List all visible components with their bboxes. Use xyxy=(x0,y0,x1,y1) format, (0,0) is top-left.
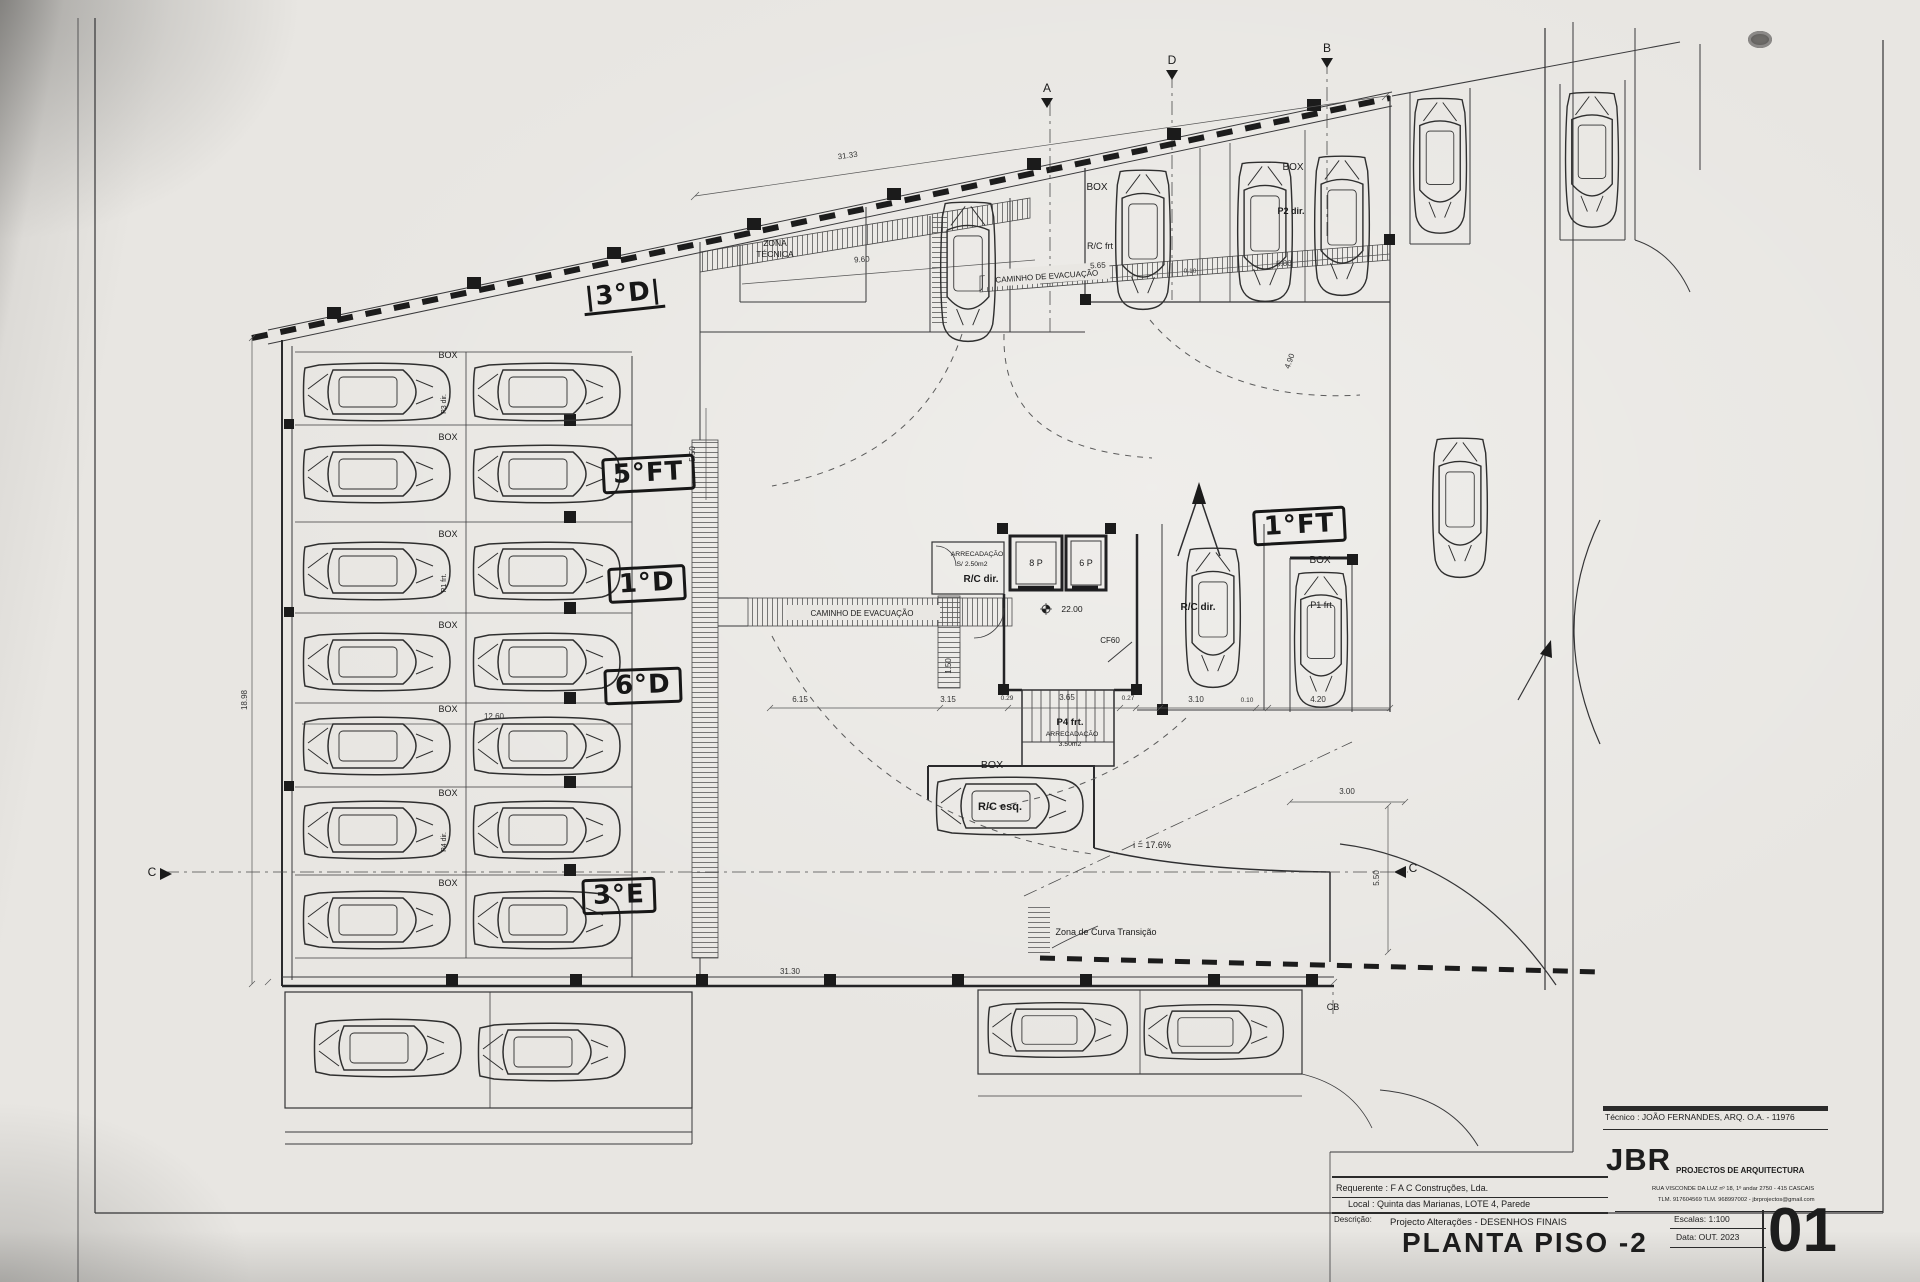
car xyxy=(304,363,451,421)
dimension-label: 9.60 xyxy=(854,254,871,264)
plan-label: P4 dir. xyxy=(441,832,448,852)
car xyxy=(304,633,451,691)
plan-label: BOX xyxy=(438,704,457,714)
section-marker-b: B xyxy=(1323,41,1331,55)
rule xyxy=(1332,1197,1608,1198)
dimension-label: 4.90 xyxy=(1283,352,1297,370)
car xyxy=(1186,548,1241,687)
plan-label: R/C dir. xyxy=(1180,602,1215,613)
plan-label: BOX xyxy=(438,878,457,888)
dimension-label: 5.80 xyxy=(1276,259,1293,269)
car xyxy=(479,1023,626,1081)
labels-layer: ZONATÉCNICACAMINHO DE EVACUAÇÃOCAMINHO D… xyxy=(148,41,1418,1012)
dimension-label: 0.10 xyxy=(1241,697,1254,704)
rule xyxy=(1332,1212,1608,1214)
plan-label: BOX xyxy=(981,759,1003,771)
plan-label: CF60 xyxy=(1100,636,1120,645)
plan-label: R/C esq. xyxy=(978,801,1022,813)
rule xyxy=(1603,1129,1828,1130)
dimension-label: 6.15 xyxy=(792,695,808,704)
rule xyxy=(1670,1228,1766,1229)
plan-label: TÉCNICA xyxy=(756,249,794,259)
plan-label: BOX xyxy=(438,620,457,630)
dimension-label: 5.50 xyxy=(1372,870,1381,886)
plan-label: 8 P xyxy=(1029,558,1043,568)
tecnico-line: Técnico : JOÃO FERNANDES, ARQ. O.A. - 11… xyxy=(1605,1113,1795,1122)
requerente-line: Requerente : F A C Construções, Lda. xyxy=(1336,1184,1488,1193)
plan-label: BOX xyxy=(438,529,457,539)
section-marker-c-right: C xyxy=(1409,861,1418,875)
sheet-number: 01 xyxy=(1768,1198,1837,1263)
date-line: Data: OUT. 2023 xyxy=(1676,1233,1739,1242)
dimension-label: 5.65 xyxy=(1090,261,1107,271)
dimension-label: 0.29 xyxy=(1001,695,1014,702)
plan-label: BOX xyxy=(438,350,457,360)
plan-label: ZONA xyxy=(763,238,787,248)
plan-label: ARRECADAÇÃO xyxy=(951,549,1004,558)
section-marker-a: A xyxy=(1043,81,1051,95)
car xyxy=(1238,162,1293,301)
plan-label: P4 frt. xyxy=(1057,717,1084,728)
scale-line: Escalas: 1:100 xyxy=(1674,1215,1730,1224)
plan-label: R/C frt xyxy=(1087,241,1113,251)
car xyxy=(474,363,621,421)
car xyxy=(304,542,451,600)
section-marker-c-left: C xyxy=(148,865,157,879)
photo-of-drawing-sheet: ZONATÉCNICACAMINHO DE EVACUAÇÃOCAMINHO D… xyxy=(0,0,1920,1282)
rule xyxy=(1615,1211,1883,1212)
car xyxy=(474,445,621,503)
plan-label: P3 dir. xyxy=(441,394,448,414)
floor-plan-drawing: ZONATÉCNICACAMINHO DE EVACUAÇÃOCAMINHO D… xyxy=(0,0,1920,1282)
dimension-label: 3.15 xyxy=(940,695,956,704)
plan-label: BOX xyxy=(438,432,457,442)
plan-label: R/C dir. xyxy=(963,574,998,585)
section-marker-cb: CB xyxy=(1327,1002,1340,1012)
car xyxy=(474,542,621,600)
dimension-label: 31.33 xyxy=(837,150,859,162)
handwritten-label: 1°D xyxy=(607,564,686,604)
dimension-label: 18.98 xyxy=(240,689,249,710)
car xyxy=(1315,156,1370,295)
dimension-label: 3.10 xyxy=(1188,695,1204,704)
plan-label: P1 frt. xyxy=(441,574,448,593)
firm-logo: JBR xyxy=(1606,1144,1671,1177)
car xyxy=(474,801,621,859)
sheet-title: PLANTA PISO -2 xyxy=(1402,1228,1648,1257)
section-marker-d: D xyxy=(1168,53,1177,67)
plan-label: BOX xyxy=(1282,162,1303,173)
plan-label: ARRECADAÇÃO xyxy=(1046,729,1099,738)
exterior-parking xyxy=(285,990,1372,1144)
car xyxy=(474,717,621,775)
core-elevators-stairs xyxy=(932,534,1137,766)
dimension-label: 31.30 xyxy=(780,967,801,976)
dimension-label: 3.00 xyxy=(1339,787,1355,796)
dimension-label: 12.60 xyxy=(484,712,505,721)
plan-label: 6 P xyxy=(1079,558,1093,568)
car xyxy=(304,801,451,859)
plan-label: i = 17.6% xyxy=(1133,840,1171,850)
plan-label: Zona de Curva Transição xyxy=(1055,927,1156,937)
descricao-label: Descrição: xyxy=(1334,1216,1372,1224)
handwritten-label: 1°FT xyxy=(1252,506,1346,547)
section-lines xyxy=(160,58,1408,1014)
punch-hole xyxy=(1748,31,1772,48)
handwritten-label: 5°FT xyxy=(601,454,695,495)
dimension-label: 3.65 xyxy=(1059,693,1075,702)
handwritten-label: 3°E xyxy=(581,877,656,916)
plan-label: CAMINHO DE EVACUAÇÃO xyxy=(811,609,914,618)
plan-label: 22.00 xyxy=(1061,604,1083,614)
car xyxy=(304,717,451,775)
dimension-label: 1.50 xyxy=(944,658,953,674)
plan-label: BOX xyxy=(1309,555,1330,566)
car xyxy=(1144,1005,1283,1060)
car xyxy=(988,1003,1127,1058)
car xyxy=(304,445,451,503)
plan-label: P2 dir. xyxy=(1277,206,1304,216)
plan-label: S/ 2.50m2 xyxy=(957,561,988,568)
dimension-lines xyxy=(249,92,1408,987)
plan-label: BOX xyxy=(1086,182,1107,193)
titleblock-topbar xyxy=(1603,1106,1828,1111)
ramp-guides xyxy=(772,320,1602,972)
cars-layer xyxy=(304,92,1619,1080)
car xyxy=(1295,572,1348,707)
garage-walls xyxy=(252,28,1700,1146)
rule xyxy=(1670,1247,1766,1248)
plan-label: 3.50m2 xyxy=(1059,741,1082,748)
car xyxy=(474,633,621,691)
rule xyxy=(1332,1176,1608,1178)
rule xyxy=(1762,1210,1764,1282)
plan-label: P1 frt xyxy=(1310,600,1332,610)
dimension-label: 0.10 xyxy=(1184,268,1197,275)
car xyxy=(1116,170,1171,309)
dimension-label: 0.27 xyxy=(1122,695,1135,702)
car xyxy=(1433,438,1488,577)
dimension-label: 4.20 xyxy=(1310,695,1326,704)
handwritten-label: 6°D xyxy=(603,667,682,706)
car xyxy=(304,891,451,949)
car xyxy=(1414,98,1467,233)
car xyxy=(315,1019,462,1077)
firm-tagline: PROJECTOS DE ARQUITECTURA xyxy=(1676,1167,1804,1175)
local-line: Local : Quinta das Marianas, LOTE 4, Par… xyxy=(1348,1200,1530,1209)
plan-label: BOX xyxy=(438,788,457,798)
firm-address: RUA VISCONDE DA LUZ nº 18, 1º andar 2750… xyxy=(1652,1186,1814,1192)
